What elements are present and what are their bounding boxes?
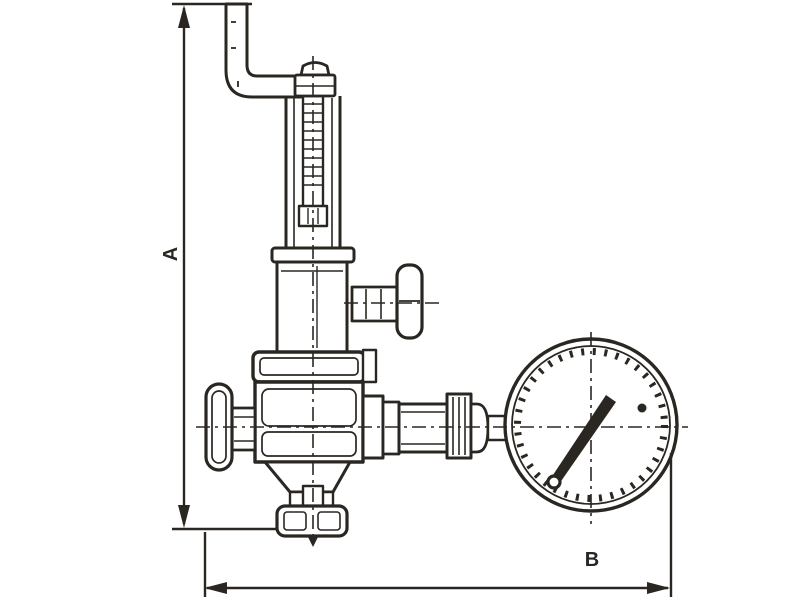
drawing-canvas: A B bbox=[0, 0, 800, 598]
side-valve-handle bbox=[352, 265, 422, 338]
outlet-connection bbox=[363, 394, 507, 458]
valve-technical-drawing: A B bbox=[0, 0, 800, 598]
centerline-arrow-icon bbox=[308, 537, 318, 547]
arrow-up-icon bbox=[178, 5, 190, 28]
dimension-b-label: B bbox=[585, 549, 599, 571]
spring-housing bbox=[253, 248, 365, 382]
arrow-right-icon bbox=[647, 582, 670, 594]
gauge-marker-dot bbox=[638, 404, 647, 413]
arrow-left-icon bbox=[204, 582, 227, 594]
arrow-down-icon bbox=[178, 505, 190, 528]
inlet-pipe bbox=[226, 4, 301, 97]
screw-cap bbox=[301, 63, 329, 76]
needle-hub bbox=[548, 476, 560, 488]
drain-cap bbox=[265, 462, 350, 536]
dimension-a-label: A bbox=[160, 247, 182, 261]
